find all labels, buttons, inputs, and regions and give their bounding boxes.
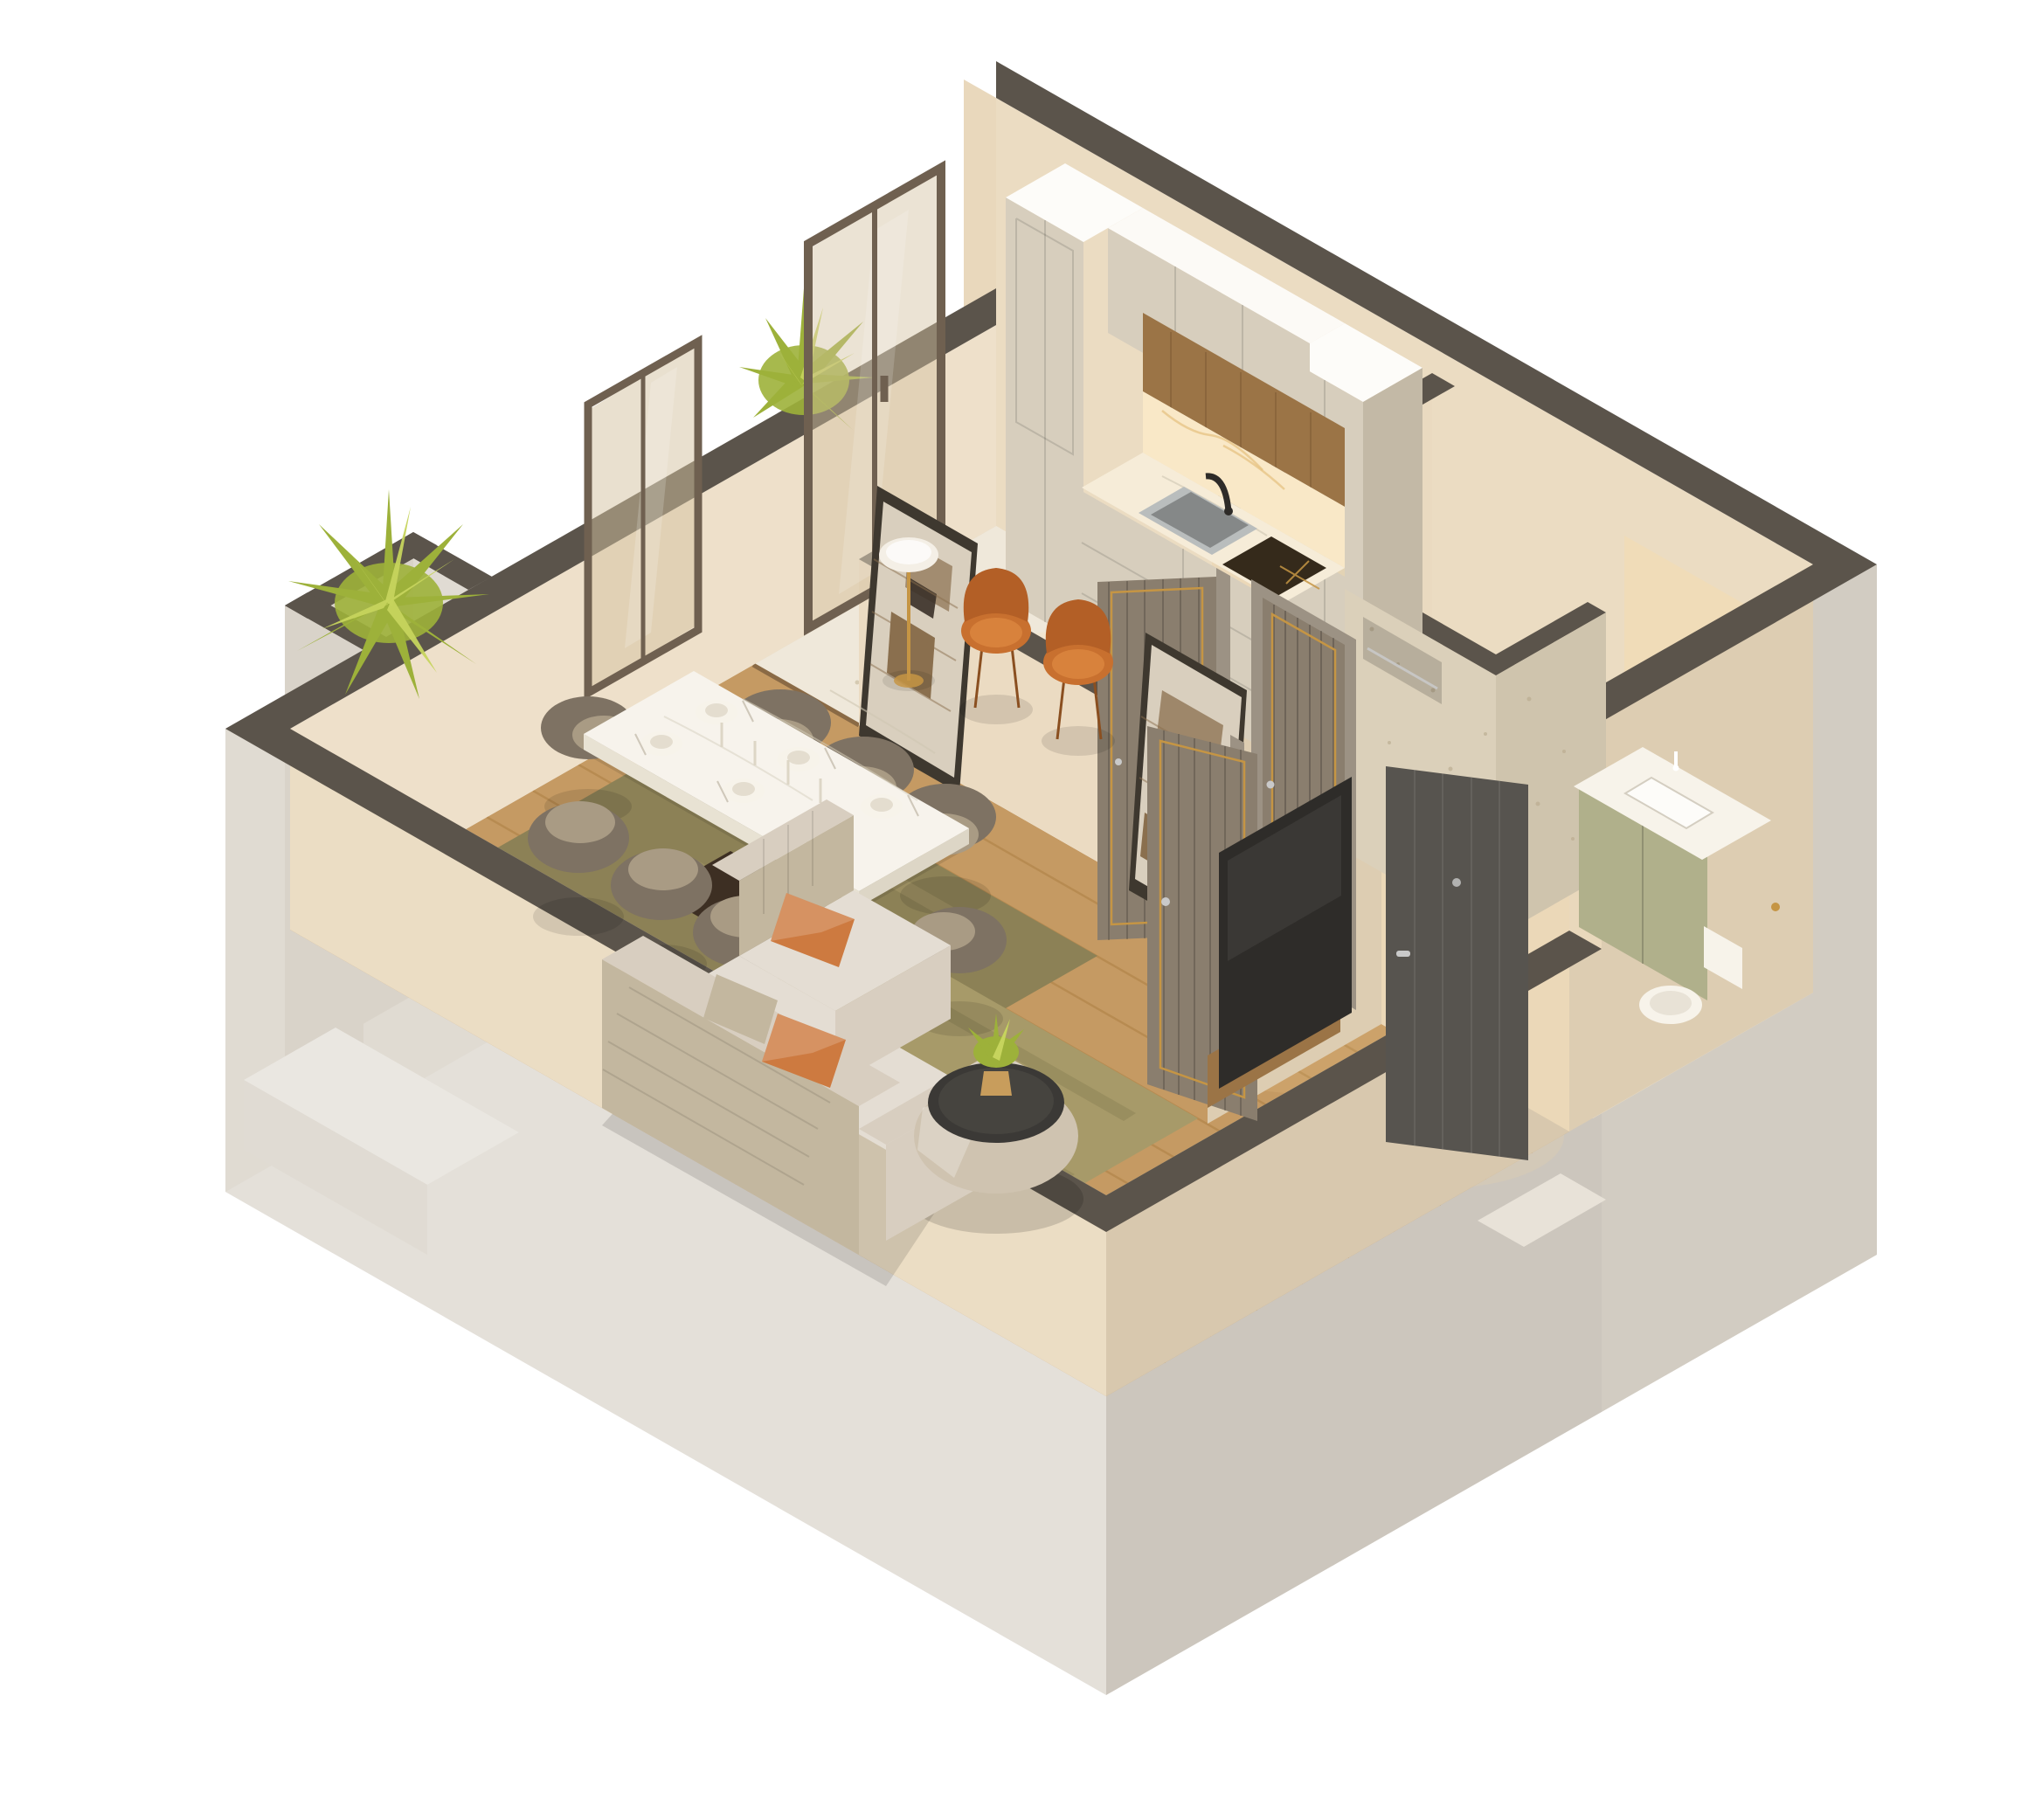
window-left [588,342,698,693]
wall-cap-top-corner [964,80,996,325]
door-handle [1161,897,1170,906]
door-handle [1115,758,1122,765]
entry-door-handle [1396,951,1410,957]
toilet-paper-holder [1771,903,1780,911]
entry-door-leaf [1386,766,1528,1160]
isometric-apartment-svg [0,0,2042,1820]
floor-plan-render [0,0,2042,1820]
peephole [1452,878,1461,887]
door-handle [1267,781,1275,789]
ottoman-plant-pot [980,1071,1012,1096]
